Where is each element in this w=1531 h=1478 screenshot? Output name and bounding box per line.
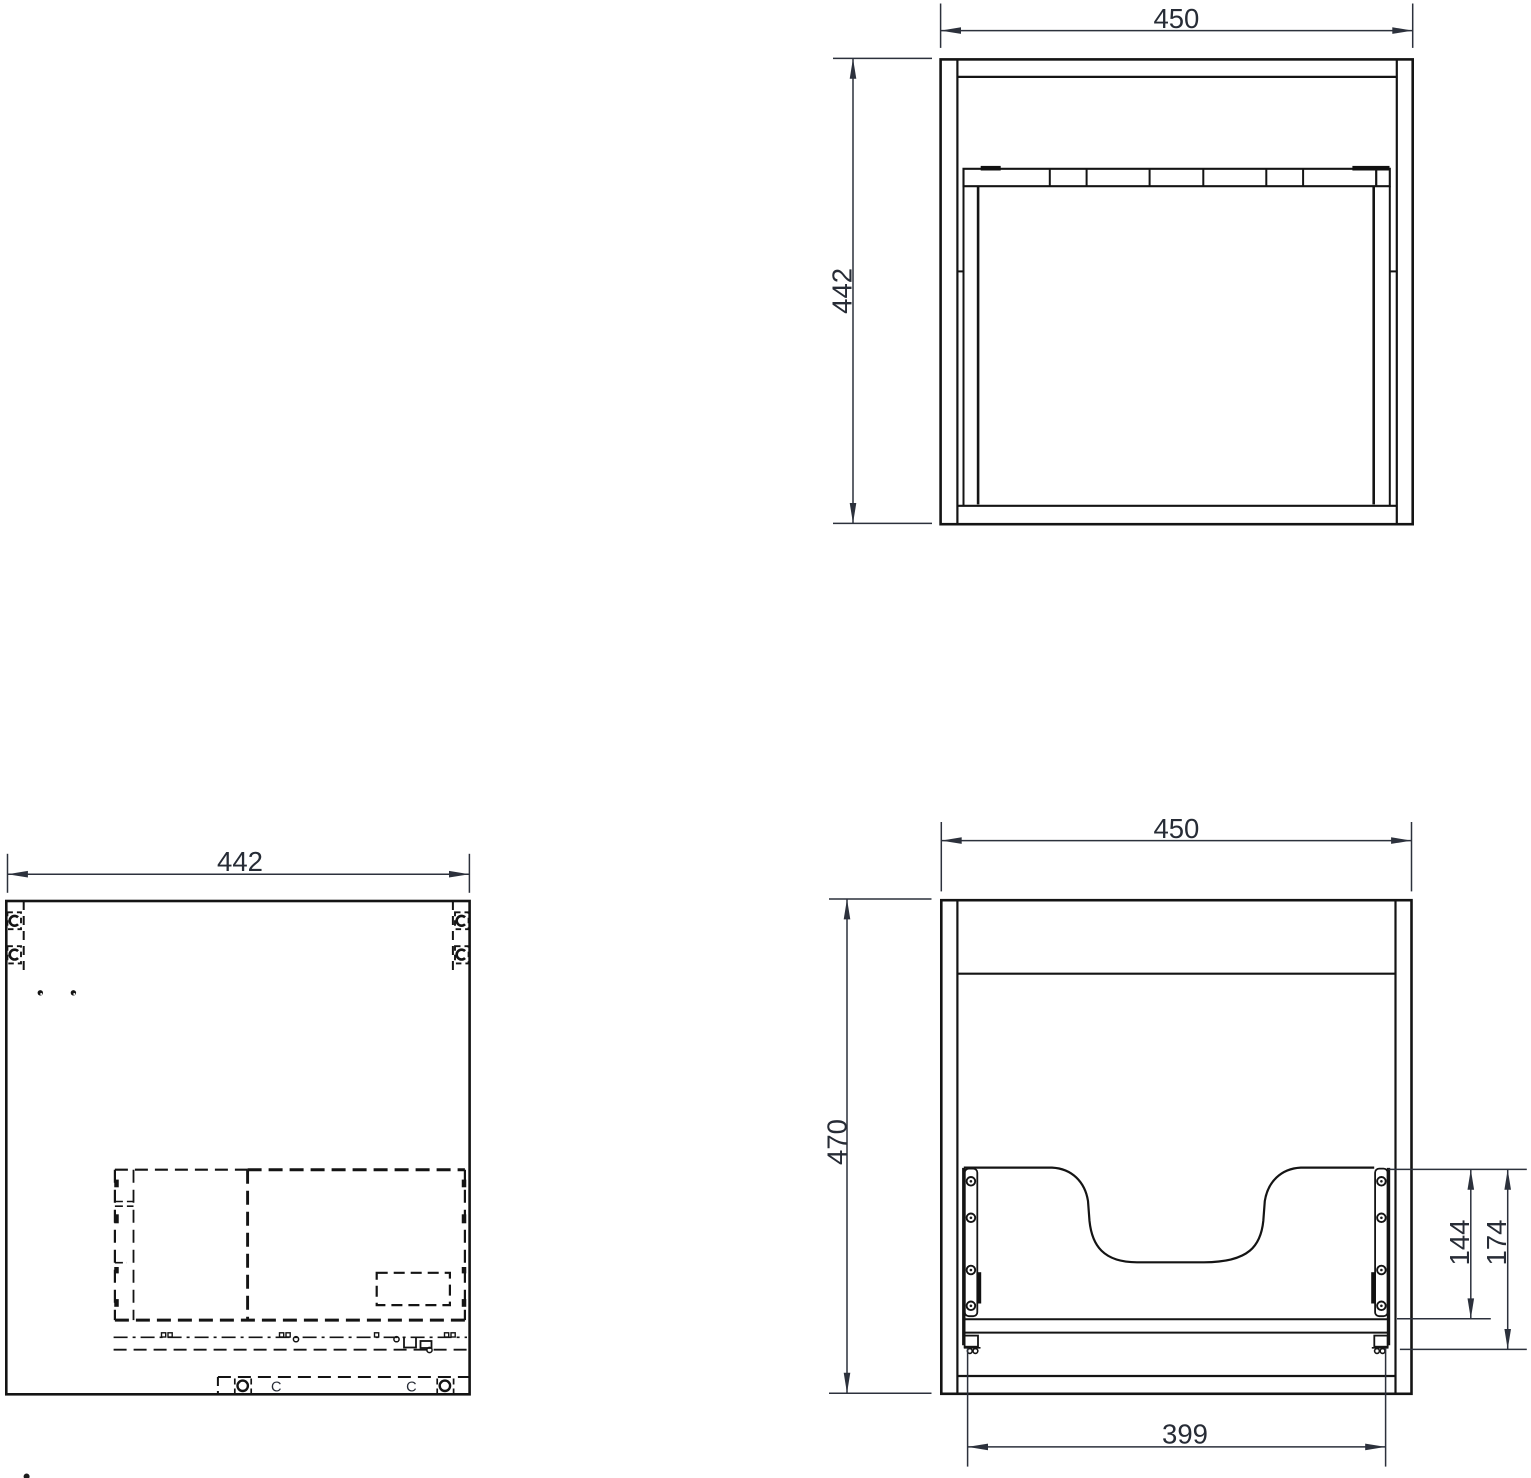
svg-text:C: C: [271, 1380, 281, 1396]
svg-text:144: 144: [1444, 1220, 1475, 1266]
svg-text:174: 174: [1481, 1220, 1512, 1266]
svg-text:450: 450: [1153, 813, 1199, 844]
svg-text:450: 450: [1153, 3, 1199, 34]
svg-text:470: 470: [822, 1119, 853, 1165]
svg-text:399: 399: [1162, 1419, 1208, 1450]
svg-text:442: 442: [217, 846, 263, 877]
svg-text:442: 442: [827, 268, 858, 314]
svg-text:C: C: [406, 1380, 416, 1396]
